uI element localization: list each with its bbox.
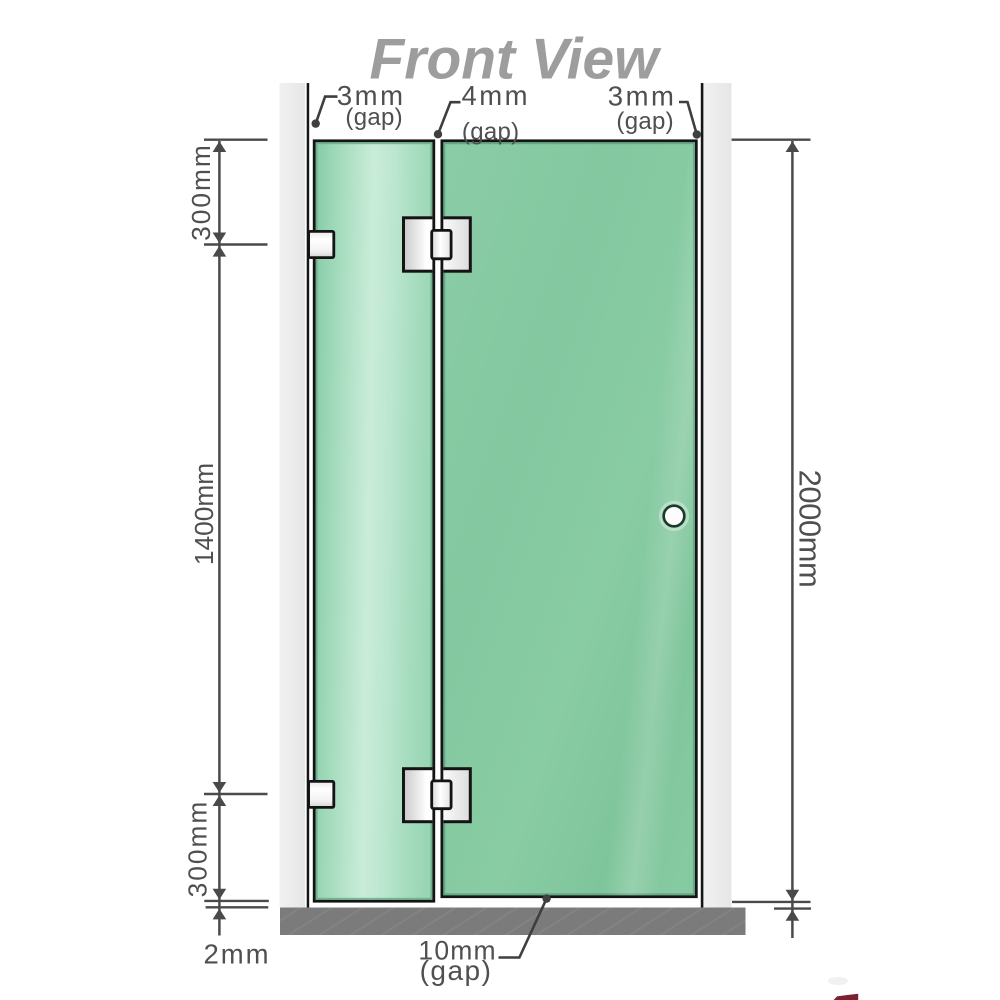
- svg-text:(gap): (gap): [616, 108, 674, 135]
- svg-text:(gap): (gap): [462, 119, 520, 146]
- svg-text:1400mm: 1400mm: [189, 463, 219, 565]
- svg-text:(gap): (gap): [345, 104, 403, 131]
- svg-text:2mm: 2mm: [203, 939, 270, 970]
- svg-text:300mm: 300mm: [186, 143, 216, 241]
- svg-text:3mm: 3mm: [608, 81, 677, 112]
- svg-text:4mm: 4mm: [461, 80, 530, 111]
- svg-text:300mm: 300mm: [183, 800, 213, 898]
- svg-text:2000mm: 2000mm: [792, 470, 827, 588]
- svg-text:(gap): (gap): [420, 955, 493, 986]
